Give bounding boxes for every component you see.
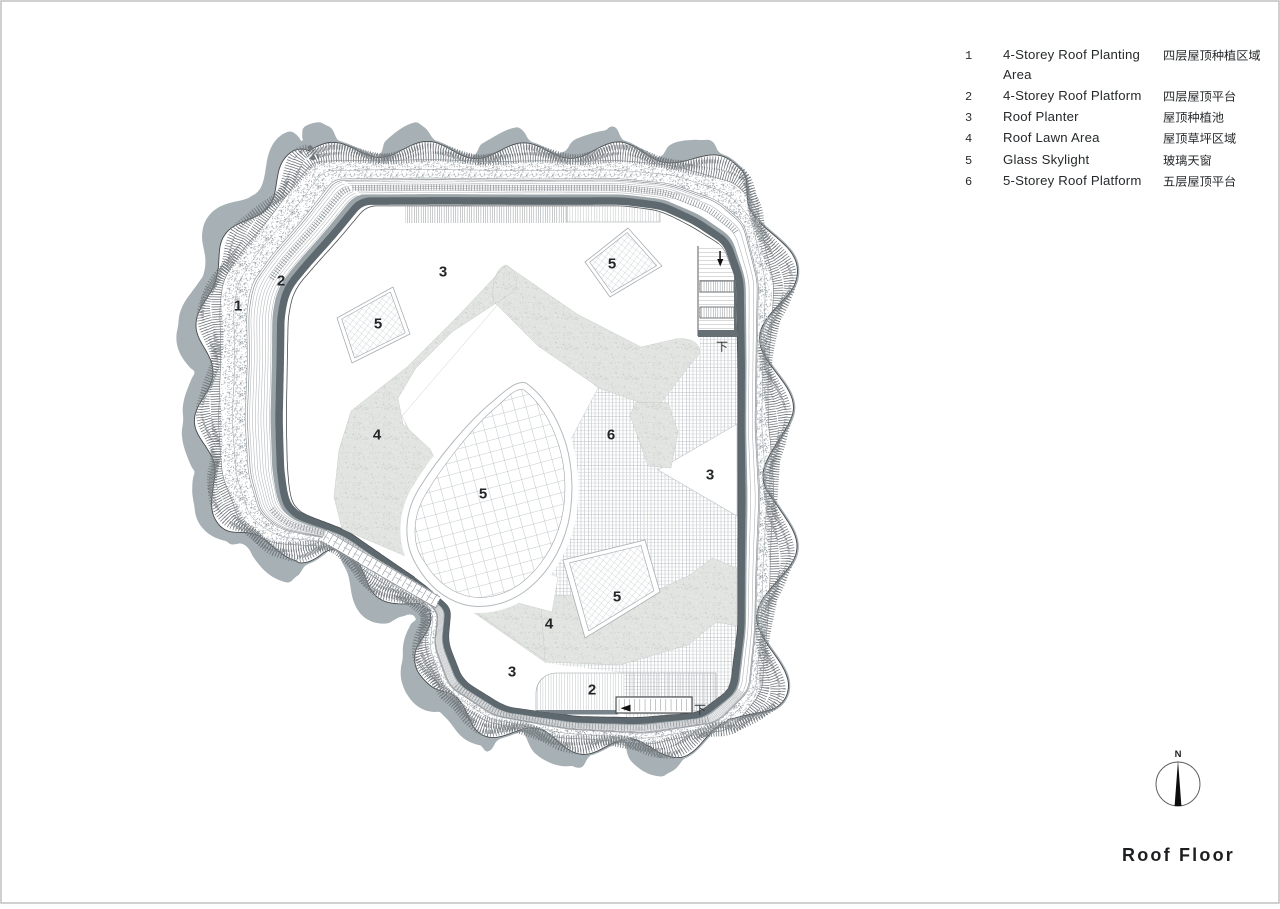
svg-text:2: 2: [588, 682, 596, 699]
svg-text:4: 4: [373, 427, 382, 444]
svg-text:4: 4: [965, 132, 972, 146]
svg-text:5-Storey Roof Platform: 5-Storey Roof Platform: [1003, 173, 1142, 188]
svg-text:5: 5: [613, 589, 621, 606]
svg-text:6: 6: [607, 427, 615, 444]
svg-text:1: 1: [965, 49, 972, 63]
svg-text:6: 6: [965, 175, 972, 189]
svg-text:5: 5: [479, 486, 487, 503]
svg-text:5: 5: [374, 316, 382, 333]
svg-text:3: 3: [706, 467, 714, 484]
svg-text:N: N: [1175, 749, 1182, 760]
svg-text:4: 4: [545, 616, 554, 633]
svg-text:Roof Planter: Roof Planter: [1003, 109, 1079, 124]
svg-text:5: 5: [608, 256, 616, 273]
svg-text:3: 3: [439, 264, 447, 281]
svg-text:1: 1: [234, 298, 242, 315]
svg-text:4-Storey Roof Planting: 4-Storey Roof Planting: [1003, 47, 1140, 62]
svg-text:3: 3: [508, 664, 516, 681]
svg-text:Glass Skylight: Glass Skylight: [1003, 152, 1089, 167]
svg-text:2: 2: [965, 90, 972, 104]
svg-text:Area: Area: [1003, 67, 1032, 82]
svg-text:5: 5: [965, 154, 972, 168]
svg-text:Roof Lawn Area: Roof Lawn Area: [1003, 130, 1100, 145]
svg-text:3: 3: [965, 111, 972, 125]
svg-text:2: 2: [277, 273, 285, 290]
svg-text:Roof Floor: Roof Floor: [1122, 845, 1235, 865]
svg-text:4-Storey Roof Platform: 4-Storey Roof Platform: [1003, 88, 1142, 103]
